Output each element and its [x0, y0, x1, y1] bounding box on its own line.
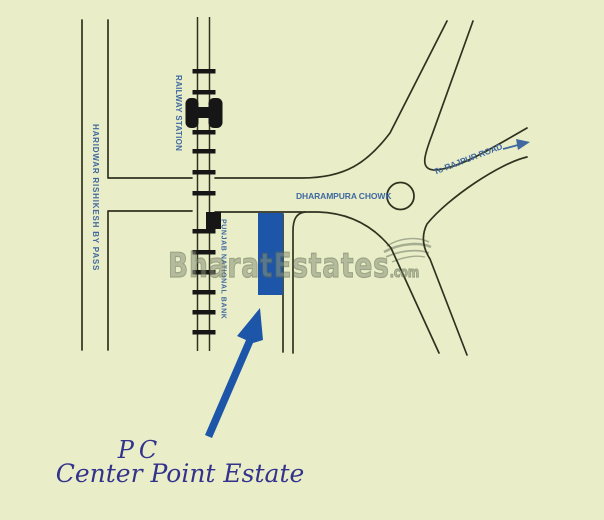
- railway-station-icon: [186, 98, 223, 128]
- northeast-road-east-line: [425, 21, 527, 170]
- location-map: HARIDWAR RISHIKESH BY PASS RAILWAY STATI…: [0, 0, 604, 520]
- watermark: BharatEstates.com: [168, 246, 419, 286]
- rajpur-direction-arrow-icon: [503, 139, 530, 150]
- railway-track: [186, 17, 223, 351]
- watermark-brand: BharatEstates: [168, 246, 390, 286]
- railway-station-label: RAILWAY STATION: [173, 75, 182, 171]
- rajpur-southeast-fork-line: [423, 157, 527, 355]
- dharampura-chowk-label: DHARAMPURA CHOWK: [296, 192, 391, 201]
- watermark-tld: .com: [390, 265, 420, 281]
- roads: [82, 20, 527, 355]
- property-name: Center Point Estate: [50, 461, 310, 486]
- road-label-haridwar-rishikesh-bypass: HARIDWAR RISHIKESH BY PASS: [90, 124, 99, 294]
- main-road-north-line: [215, 21, 447, 178]
- pointer-arrow: [205, 308, 263, 438]
